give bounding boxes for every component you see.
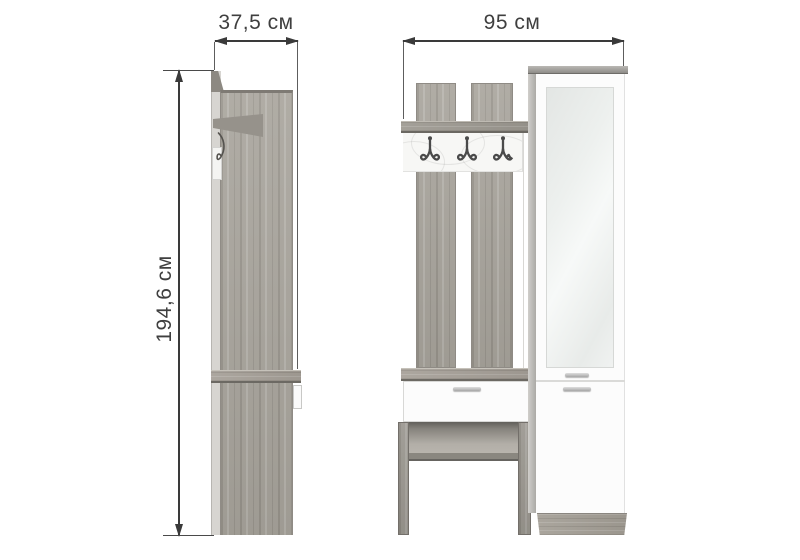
open-shelf-niche xyxy=(409,422,518,453)
coat-hook-icon xyxy=(454,135,480,169)
coat-hook-icon xyxy=(417,135,443,169)
mirror-door-handle xyxy=(565,373,589,377)
furniture-dimension-diagram: 37,5 см 194,6 см 95 см xyxy=(0,0,800,560)
front-width-dimension-arrow xyxy=(403,40,624,42)
front-view: 95 см xyxy=(0,0,800,560)
extension-line xyxy=(623,42,624,66)
drawer-handle xyxy=(453,387,481,391)
rack-side-edge-line xyxy=(523,133,524,368)
wardrobe-plinth xyxy=(537,513,627,535)
front-width-label: 95 см xyxy=(452,11,572,35)
extension-line xyxy=(403,42,404,119)
wardrobe-top-panel xyxy=(528,66,628,74)
left-leg xyxy=(398,422,409,535)
coat-hook-icon xyxy=(490,135,516,169)
open-shelf-board xyxy=(398,453,531,461)
hat-shelf xyxy=(401,121,528,133)
mirror xyxy=(546,87,614,368)
lower-door-handle xyxy=(563,387,591,391)
lower-door xyxy=(536,382,625,513)
wardrobe-side-panel xyxy=(528,74,536,513)
bench-top xyxy=(401,368,530,381)
